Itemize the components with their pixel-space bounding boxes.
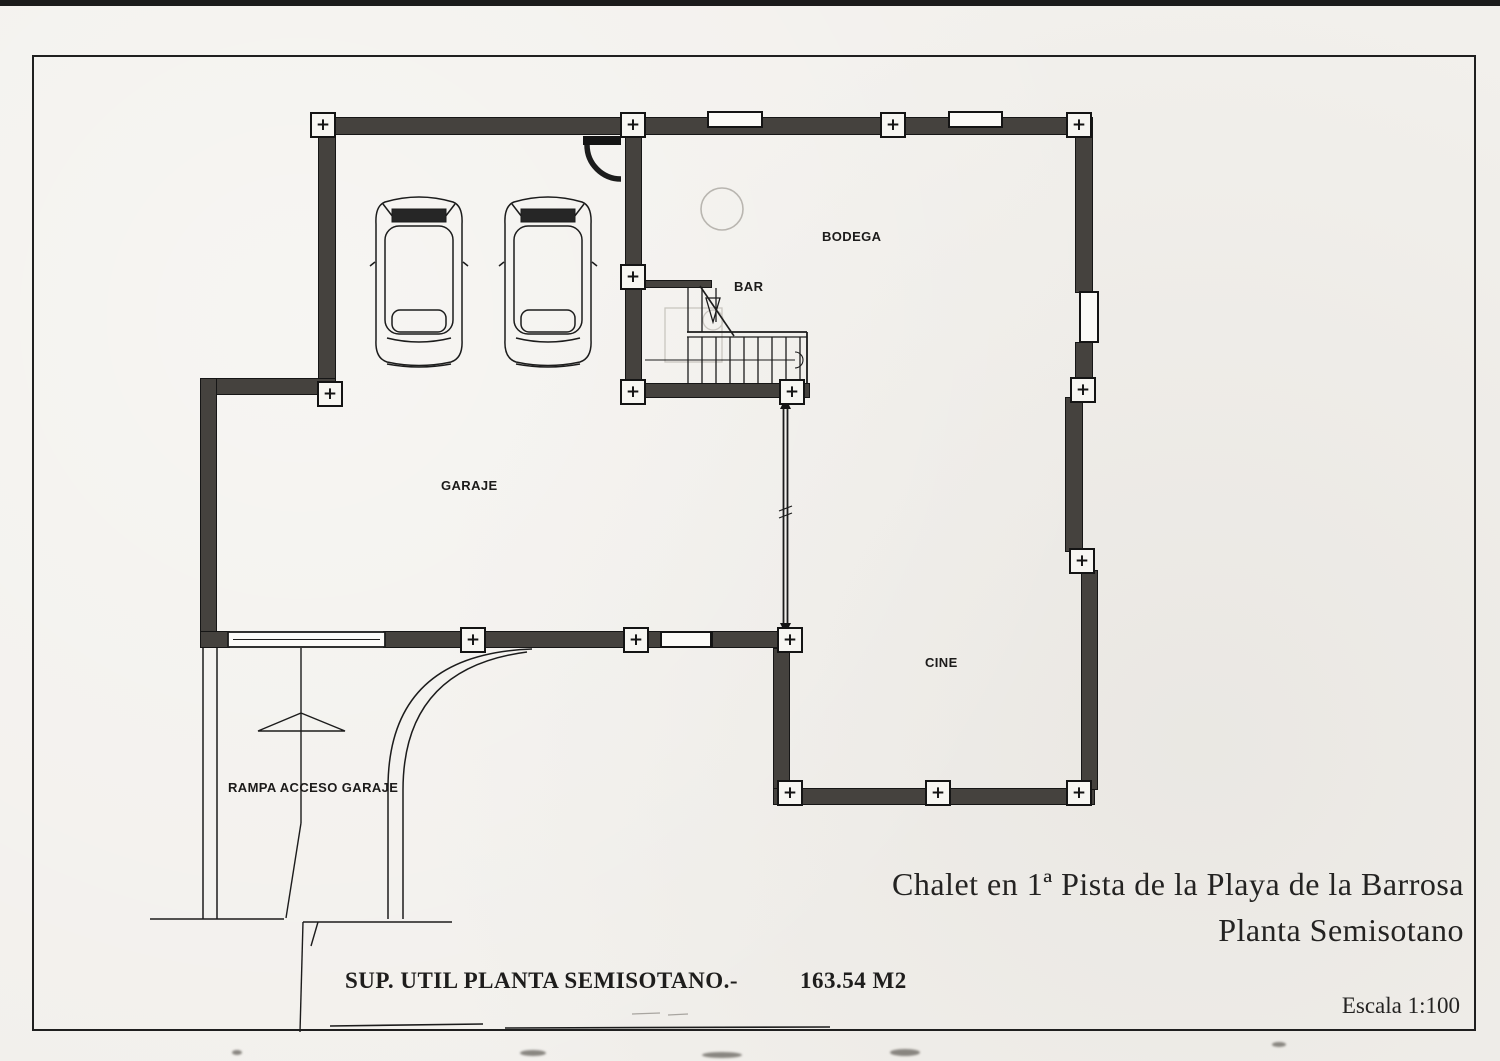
pilaster-marker: + [1066, 112, 1092, 138]
window-opening [660, 631, 712, 648]
pilaster-marker: + [310, 112, 336, 138]
bottom-rule [505, 1027, 830, 1028]
drawing-sheet: + + + + + + + + + + + + + + + + [0, 0, 1500, 1061]
window-opening [948, 111, 1003, 128]
pilaster-marker: + [1070, 377, 1096, 403]
window-opening [1079, 291, 1099, 343]
scan-dashes [632, 1013, 688, 1015]
pilaster-marker: + [777, 780, 803, 806]
drawing-subtitle: Planta Semisotano [892, 910, 1464, 950]
pilaster-marker: + [925, 780, 951, 806]
pilaster-marker: + [623, 627, 649, 653]
pilaster-marker: + [317, 381, 343, 407]
scale-label: Escala 1:100 [1342, 993, 1460, 1019]
bottom-rule [330, 1024, 483, 1026]
pilaster-marker: + [620, 264, 646, 290]
ramp-centerline [258, 648, 345, 1032]
pilaster-marker: + [620, 379, 646, 405]
room-label-cine: CINE [925, 656, 958, 670]
room-label-rampa: RAMPA ACCESO GARAJE [228, 781, 398, 795]
car-top-view [499, 197, 597, 367]
partition-line [779, 398, 792, 634]
room-label-garaje: GARAJE [441, 479, 498, 493]
pilaster-marker: + [1069, 548, 1095, 574]
staircase [645, 286, 807, 383]
room-label-bodega: BODEGA [822, 230, 881, 244]
drawing-title: Chalet en 1ª Pista de la Playa de la Bar… [892, 864, 1464, 904]
pilaster-marker: + [620, 112, 646, 138]
pilaster-marker: + [779, 379, 805, 405]
window-opening [707, 111, 763, 128]
pilaster-marker: + [1066, 780, 1092, 806]
title-block: Chalet en 1ª Pista de la Playa de la Bar… [892, 864, 1464, 950]
area-value: 163.54 M2 [800, 968, 907, 994]
pilaster-marker: + [777, 627, 803, 653]
room-label-bar: BAR [734, 280, 763, 294]
car-top-view [370, 197, 468, 367]
pilaster-marker: + [880, 112, 906, 138]
garage-door [228, 632, 385, 647]
area-summary: SUP. UTIL PLANTA SEMISOTANO.- 163.54 M2 [345, 968, 907, 994]
column-circle [701, 188, 743, 230]
door-swing [583, 136, 621, 179]
area-label: SUP. UTIL PLANTA SEMISOTANO.- [345, 968, 738, 994]
pilaster-marker: + [460, 627, 486, 653]
